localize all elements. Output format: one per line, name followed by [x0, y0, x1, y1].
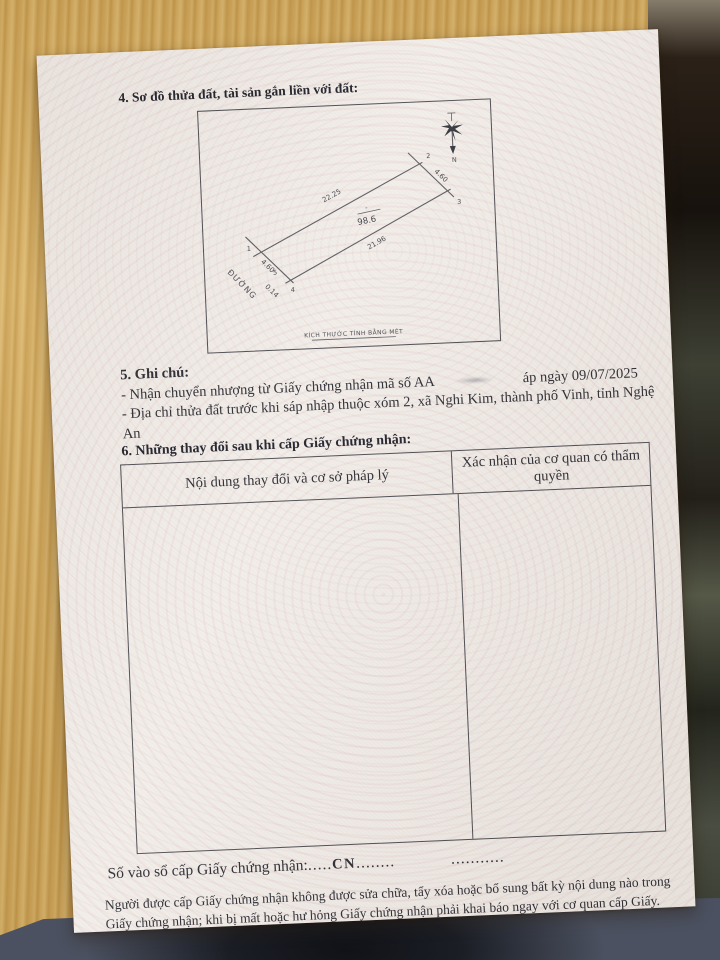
vertex-1-label: 1: [247, 245, 251, 253]
registry-dots-mid: ........: [356, 853, 396, 872]
parcel-diagram-box: N 1 2 3 4 5 22.25 21.96 4.60 4.60 0.14 -…: [197, 98, 501, 353]
vertex-3-label: 3: [457, 198, 461, 206]
parcel-number-mark: -: [365, 204, 368, 212]
parcel-edge-bottom: [282, 189, 455, 283]
north-label: N: [452, 156, 457, 164]
dim-right-label: 4.60: [432, 167, 449, 184]
vertex-2-label: 2: [426, 152, 430, 160]
dim-bottom-label: 21.96: [366, 234, 388, 251]
diagram-caption: KÍCH THƯỚC TÍNH BẰNG MÉT: [304, 327, 403, 339]
registry-dots-left: .....: [307, 856, 332, 874]
dim-top-label: 22.25: [321, 187, 342, 204]
authority-confirm-cell: [458, 486, 665, 839]
changes-table-body: [123, 486, 665, 853]
change-content-cell: [123, 494, 473, 853]
redacted-serial: [435, 373, 523, 387]
registry-code: CN: [332, 856, 357, 873]
note-transfer-suffix: áp ngày 09/07/2025: [522, 365, 638, 386]
registry-dots-right: ...........: [451, 848, 505, 867]
parcel-edge-top: [250, 162, 427, 256]
section4-heading: 4. Sơ đồ thửa đất, tài sản gắn liền với …: [118, 80, 358, 106]
compass-north-icon: N: [440, 113, 464, 165]
parcel-area-label: 98.6: [357, 214, 378, 228]
parcel-edge-left: [245, 235, 293, 285]
col-authority-confirm-header: Xác nhận của cơ quan có thẩm quyền: [452, 443, 650, 493]
registry-label: Số vào sổ cấp Giấy chứng nhận:: [107, 857, 308, 883]
changes-table: Nội dung thay đổi và cơ sở pháp lý Xác n…: [120, 442, 666, 854]
parcel-diagram: N 1 2 3 4 5 22.25 21.96 4.60 4.60 0.14 -…: [198, 99, 500, 352]
vertex-4-label: 4: [291, 286, 295, 294]
registry-number-line: Số vào sổ cấp Giấy chứng nhận:.....CN...…: [107, 848, 505, 883]
road-label: ĐƯỜNG: [226, 266, 260, 301]
fraction-line: [357, 209, 380, 214]
section5-notes: 5. Ghi chú: - Nhận chuyển nhượng từ Giấy…: [120, 343, 663, 444]
certificate-page: 4. Sơ đồ thửa đất, tài sản gắn liền với …: [37, 29, 696, 933]
dim-offset-label: 0.14: [263, 283, 280, 300]
